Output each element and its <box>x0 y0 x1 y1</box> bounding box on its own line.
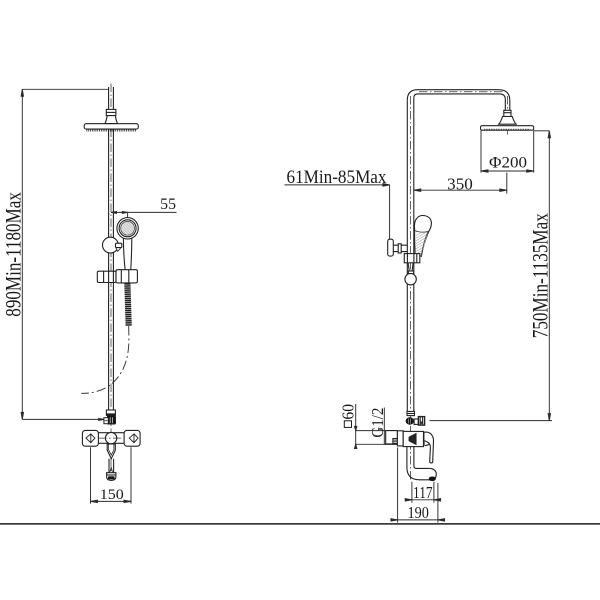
svg-text:60: 60 <box>338 404 357 420</box>
svg-text:150: 150 <box>100 487 124 503</box>
svg-text:Φ200: Φ200 <box>489 155 527 172</box>
svg-text:750Min-1135Max: 750Min-1135Max <box>528 213 553 338</box>
svg-text:350: 350 <box>447 175 473 194</box>
svg-text:890Min-1180Max: 890Min-1180Max <box>1 192 26 317</box>
svg-text:117: 117 <box>413 483 433 502</box>
svg-text:55: 55 <box>160 196 176 213</box>
svg-text:190: 190 <box>408 503 429 522</box>
